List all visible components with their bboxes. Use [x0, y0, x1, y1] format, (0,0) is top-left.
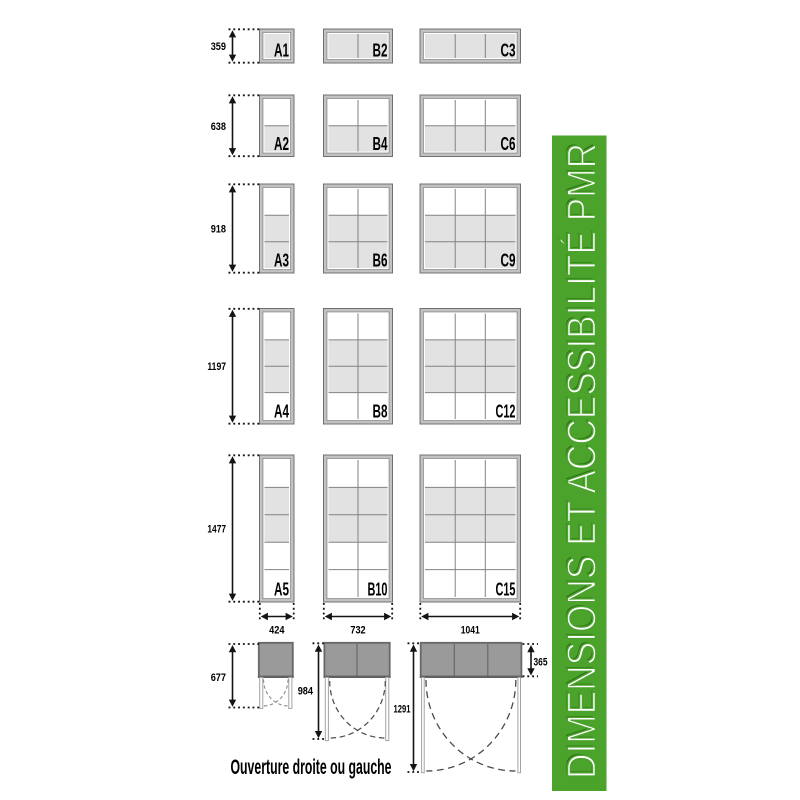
- svg-text:C9: C9: [501, 251, 516, 271]
- svg-text:DIMENSIONS ET ACCESSIBILITÉ PM: DIMENSIONS ET ACCESSIBILITÉ PMR: [559, 143, 605, 779]
- svg-text:B6: B6: [373, 251, 388, 271]
- svg-text:Ouverture droite ou gauche: Ouverture droite ou gauche: [231, 756, 392, 779]
- svg-text:732: 732: [350, 625, 365, 637]
- svg-text:918: 918: [211, 224, 226, 236]
- svg-text:C6: C6: [501, 134, 516, 154]
- svg-text:359: 359: [211, 41, 226, 53]
- svg-text:B8: B8: [373, 402, 388, 422]
- svg-text:677: 677: [211, 672, 226, 684]
- svg-text:1197: 1197: [207, 361, 226, 373]
- svg-text:A5: A5: [274, 580, 289, 600]
- svg-text:B4: B4: [373, 134, 388, 154]
- svg-text:638: 638: [211, 121, 226, 133]
- svg-text:C3: C3: [501, 41, 516, 61]
- svg-text:B2: B2: [373, 41, 388, 61]
- svg-text:A3: A3: [274, 251, 289, 271]
- svg-text:1041: 1041: [461, 625, 480, 637]
- svg-text:C15: C15: [496, 580, 516, 600]
- svg-text:C12: C12: [496, 402, 516, 422]
- svg-text:365: 365: [534, 657, 548, 669]
- svg-text:A4: A4: [274, 402, 289, 422]
- svg-text:B10: B10: [368, 580, 388, 600]
- svg-text:A2: A2: [274, 134, 289, 154]
- svg-text:424: 424: [269, 625, 285, 637]
- svg-text:1291: 1291: [394, 704, 411, 716]
- svg-text:A1: A1: [274, 41, 289, 61]
- svg-text:1477: 1477: [207, 524, 226, 536]
- svg-text:984: 984: [298, 686, 314, 698]
